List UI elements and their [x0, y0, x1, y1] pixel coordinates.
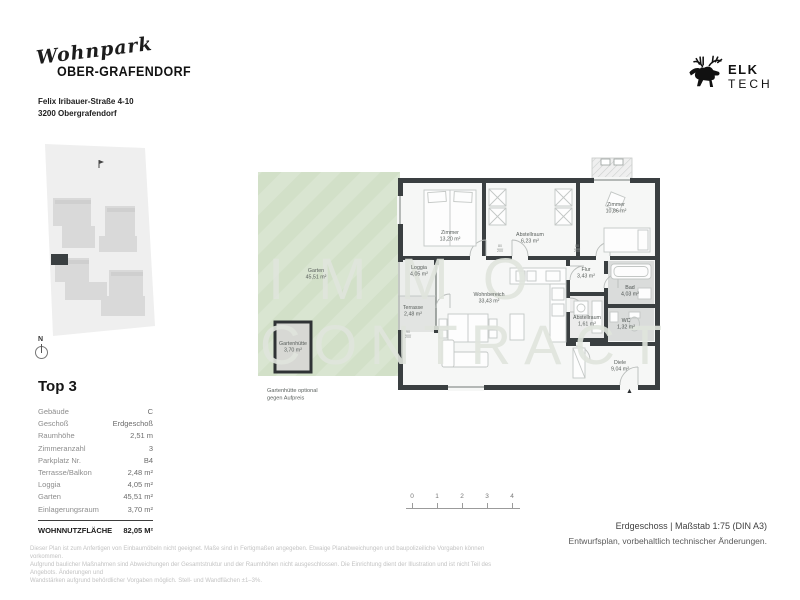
draft-plan-note: Entwurfsplan, vorbehaltlich technischer …	[569, 536, 767, 546]
address-line-1: Felix Iribauer-Straße 4-10	[38, 97, 134, 106]
entrance-arrow: ▲	[626, 388, 633, 395]
north-label: N	[38, 336, 43, 343]
room-label-diele: Diele9,04 m²	[611, 359, 629, 373]
scale-bar-line	[406, 508, 520, 509]
elk-icon	[684, 52, 730, 96]
table-row: Raumhöhe2,51 m	[38, 431, 153, 440]
tech-wordmark: TECH	[728, 77, 773, 91]
unit-title: Top 3	[38, 378, 77, 395]
room-label-wohnbereich: Wohnbereich33,43 m²	[473, 291, 504, 305]
room-label-zimmer-1: Zimmer13,20 m²	[440, 229, 461, 243]
room-label-zimmer-2: Zimmer10,86 m²	[606, 201, 627, 215]
washbasin-icon	[638, 288, 651, 299]
scale-bar: 0 1 2 3 4	[404, 493, 524, 511]
total-living-area-row: WOHNNUTZFLÄCHE82,05 M²	[38, 520, 153, 535]
room-label-flur: Flur3,43 m²	[577, 266, 595, 280]
compass-needle	[41, 344, 42, 353]
address-line-2: 3200 Obergrafendorf	[38, 109, 117, 118]
washing-machine-icon	[574, 301, 588, 315]
elk-wordmark: ELK	[728, 62, 759, 77]
hall-cabinet-icon	[573, 348, 585, 378]
room-label-abstellraum-1: Abstellraum6,23 m²	[516, 231, 544, 245]
table-row: Zimmeranzahl3	[38, 444, 153, 453]
site-plan-unit-highlight	[51, 254, 68, 265]
bathtub-icon	[611, 264, 651, 279]
site-plan	[35, 138, 180, 348]
room-label-garten: Garten45,51 m²	[306, 267, 327, 281]
table-row: Loggia4,05 m²	[38, 480, 153, 489]
legal-disclaimer: Dieser Plan ist zum Anfertigen von Einba…	[30, 545, 510, 585]
door-dimension-tag: 80200	[574, 245, 580, 254]
room-label-loggia: Loggia4,05 m²	[410, 264, 428, 278]
table-row: Einlagerungsraum3,70 m²	[38, 505, 153, 514]
unit-data-table: GebäudeC GeschoßErdgeschoß Raumhöhe2,51 …	[38, 407, 153, 535]
table-row: Garten45,51 m²	[38, 492, 153, 501]
room-label-terrasse: Terrasse2,48 m²	[403, 304, 423, 318]
entrance-porch	[592, 158, 632, 178]
plan-sheet-page: Wohnpark OBER-GRAFENDORF Felix Iribauer-…	[0, 0, 800, 600]
table-row: GebäudeC	[38, 407, 153, 416]
room-label-gartenhuette: Gartenhütte3,70 m²	[279, 340, 307, 354]
table-row: Parkplatz Nr.B4	[38, 456, 153, 465]
room-label-wc: WC1,32 m²	[617, 317, 635, 331]
garden-hut-note: Gartenhütte optional gegen Aufpreis	[267, 387, 318, 401]
door-dimension-tag: 90200	[405, 331, 411, 340]
table-row: Terrasse/Balkon2,48 m²	[38, 468, 153, 477]
room-label-bad: Bad4,03 m²	[621, 284, 639, 298]
door-dimension-tag: 80200	[497, 245, 503, 254]
elk-tech-logo: ELK TECH	[684, 52, 784, 98]
project-name: OBER-GRAFENDORF	[57, 63, 191, 79]
floor-scale-note: Erdgeschoss | Maßstab 1:75 (DIN A3)	[616, 521, 767, 531]
table-row: GeschoßErdgeschoß	[38, 419, 153, 428]
room-label-abstellraum-2: Abstellraum1,61 m²	[573, 314, 601, 328]
